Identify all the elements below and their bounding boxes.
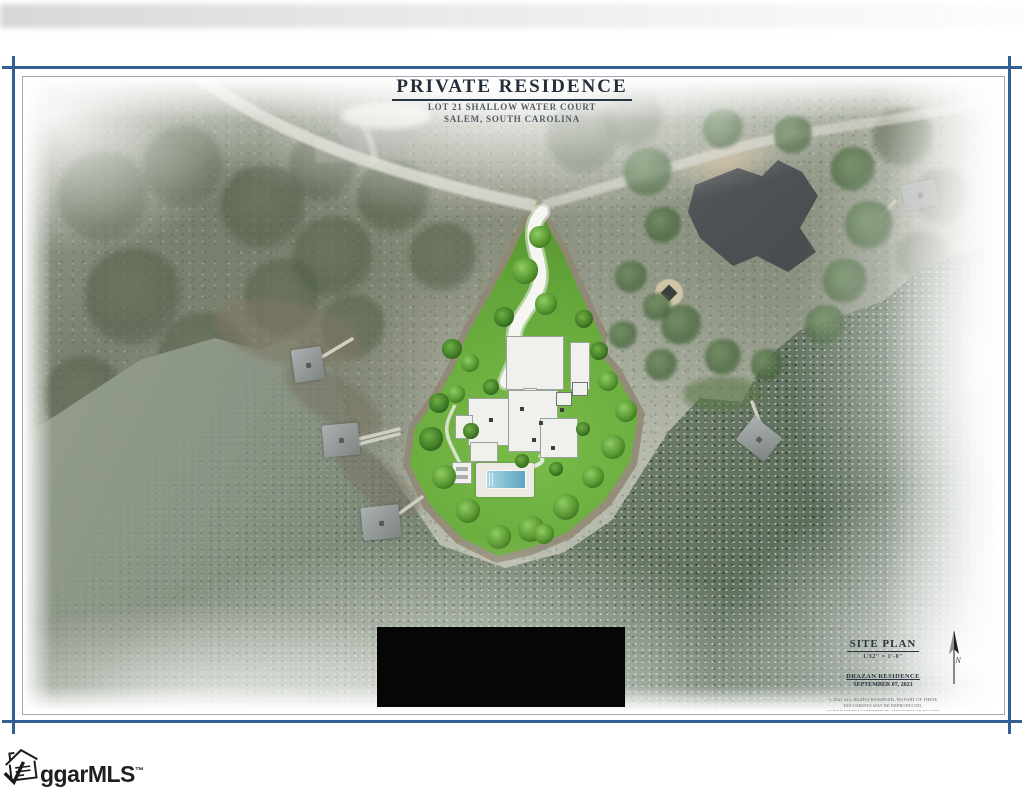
mls-watermark: ggarMLS™ [2,746,143,786]
roof-detail [532,438,536,442]
house-check-icon [2,746,44,786]
dock-roof-detail [918,192,924,198]
copyright-disclaimer: © 2021 ALL RIGHTS RESERVED. NO PART OF T… [820,697,946,711]
dock-walkway [322,339,352,357]
project-name: DRAZAN RESIDENCE [820,673,946,680]
disclaimer-line: COPIED OR TRANSMITTED IN ANY FORM OR BY … [820,709,946,711]
main-house-east-wing [540,418,578,458]
house-terrace [470,442,498,462]
boat-dock [360,504,401,541]
aerial-site-plan: SITE PLAN 1/32" = 1'-0" DRAZAN RESIDENCE… [23,77,1002,711]
roof-detail [539,421,543,425]
brand-text: ggarMLS [40,761,135,787]
project-date: SEPTEMBER 07, 2021 [820,682,946,688]
roof-detail [520,407,524,411]
north-arrow-icon: N [944,627,964,687]
dock-walkways [322,201,895,513]
roof-detail [489,418,493,422]
spa-pad-detail [456,467,468,471]
redaction-box [377,627,625,707]
drawing-scale: 1/32" = 1'-0" [820,654,946,660]
boat-dock [291,346,325,383]
dock-roof-detail [339,438,344,443]
scan-artifact-band [0,4,1024,28]
title-block: SITE PLAN 1/32" = 1'-0" DRAZAN RESIDENCE… [820,634,946,711]
site-plan-sheet: SITE PLAN 1/32" = 1'-0" DRAZAN RESIDENCE… [0,0,1024,791]
sheet-address-line1: LOT 21 SHALLOW WATER COURT [0,102,1024,113]
dock-roof-detail [379,520,384,525]
dock-roof-detail [306,362,312,368]
sheet-address-line2: SALEM, SOUTH CAROLINA [0,114,1024,125]
boat-dock [322,422,361,457]
outbuilding [572,382,588,396]
sheet-border-right [1008,56,1011,734]
north-arrow-label: N [955,656,962,665]
sheet-header: PRIVATE RESIDENCE LOT 21 SHALLOW WATER C… [0,76,1024,125]
pool-steps [492,473,493,486]
sheet-border-top [2,66,1022,69]
disclaimer-line: © 2021 ALL RIGHTS RESERVED. NO PART OF T… [820,697,946,709]
courtyard-room [556,392,572,406]
dock-walkway [400,497,422,513]
dock-roof-detail [756,436,763,443]
roof-detail [551,446,555,450]
spa-pad-detail [456,475,468,479]
drawing-title: SITE PLAN [847,638,920,652]
pool-steps [489,473,490,486]
sheet-border-bottom [2,720,1022,723]
roof-detail [560,408,564,412]
trademark-symbol: ™ [135,765,144,775]
motor-court [506,336,564,390]
sheet-title: PRIVATE RESIDENCE [392,76,631,101]
sheet-border-left [12,56,15,734]
mls-watermark-text: ggarMLS™ [40,763,143,786]
